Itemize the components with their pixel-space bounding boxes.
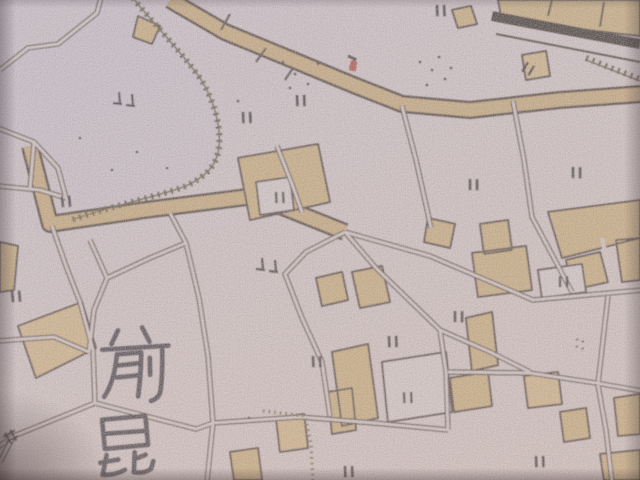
- historical-map-photo: 前 昆: [0, 0, 640, 480]
- vignette-corner-bl: [0, 390, 110, 480]
- vignette-top: [0, 0, 640, 8]
- map-canvas: [0, 0, 640, 480]
- vignette-right: [624, 0, 640, 480]
